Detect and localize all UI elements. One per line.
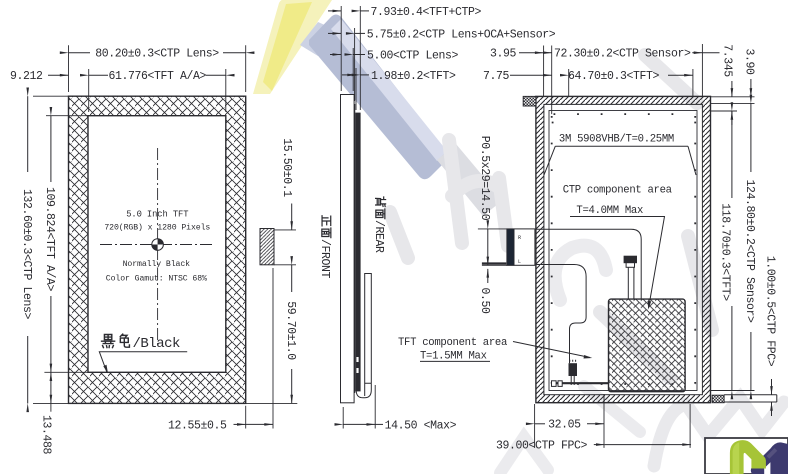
svg-text:Color Gamut: NTSC 68%: Color Gamut: NTSC 68% (106, 274, 207, 284)
svg-text:59.70±1.0: 59.70±1.0 (284, 301, 297, 360)
svg-text:Normally Black: Normally Black (123, 259, 191, 269)
svg-text:64.70±0.3<TFT>: 64.70±0.3<TFT> (568, 70, 660, 83)
svg-text:124.80±0.2<CTP Sensor>: 124.80±0.2<CTP Sensor> (743, 179, 756, 323)
svg-text:80.20±0.3<CTP Lens>: 80.20±0.3<CTP Lens> (95, 48, 219, 61)
svg-text:5.00<CTP Lens>: 5.00<CTP Lens> (367, 49, 459, 62)
svg-text:L: L (518, 259, 521, 265)
svg-text:3M 5908VHB/T=0.25MM: 3M 5908VHB/T=0.25MM (559, 133, 674, 145)
svg-text:15.50±0.1: 15.50±0.1 (280, 138, 293, 197)
svg-text:720(RGB) x 1280 Pixels: 720(RGB) x 1280 Pixels (104, 223, 210, 233)
svg-text:T=4.0MM Max: T=4.0MM Max (576, 205, 643, 217)
svg-text:14.50 <Max>: 14.50 <Max> (385, 419, 457, 432)
svg-text:P0.5x29=14.50: P0.5x29=14.50 (478, 136, 491, 221)
svg-text:32.05: 32.05 (548, 419, 581, 432)
svg-text:9.212: 9.212 (10, 70, 43, 83)
svg-text:61.776<TFT A/A>: 61.776<TFT A/A> (109, 70, 207, 83)
svg-text:7.345: 7.345 (721, 44, 734, 77)
svg-text:3.95: 3.95 (490, 48, 517, 61)
svg-text:13.488: 13.488 (40, 415, 53, 455)
svg-text:118.70±0.3<TFT>: 118.70±0.3<TFT> (718, 203, 731, 301)
svg-text:/Black: /Black (133, 336, 181, 352)
svg-text:132.60±0.3<CTP Lens>: 132.60±0.3<CTP Lens> (20, 189, 33, 320)
svg-text:5.0 Inch TFT: 5.0 Inch TFT (126, 209, 188, 219)
svg-text:CTP component area: CTP component area (563, 185, 672, 197)
svg-text:R: R (518, 235, 521, 241)
svg-text:1.98±0.2<TFT>: 1.98±0.2<TFT> (371, 70, 456, 83)
svg-text:7.93±0.4<TFT+CTP>: 7.93±0.4<TFT+CTP> (371, 6, 482, 19)
svg-text:109.824<TFT A/A>: 109.824<TFT A/A> (43, 187, 56, 292)
svg-text:1.00±0.5<CTP FPC>: 1.00±0.5<CTP FPC> (764, 256, 777, 367)
svg-text:0.50: 0.50 (478, 287, 491, 314)
svg-text:7.75: 7.75 (483, 70, 510, 83)
svg-text:72.30±0.2<CTP Sensor>: 72.30±0.2<CTP Sensor> (554, 48, 691, 61)
svg-text:39.00<CTP FPC>: 39.00<CTP FPC> (496, 440, 588, 453)
svg-text:3.90: 3.90 (742, 48, 755, 75)
svg-text:TFT component area: TFT component area (398, 337, 507, 349)
svg-text:/FRONT: /FRONT (318, 239, 331, 279)
svg-text:/REAR: /REAR (372, 220, 385, 253)
svg-text:5.75±0.2<CTP Lens+OCA+Sensor>: 5.75±0.2<CTP Lens+OCA+Sensor> (367, 28, 556, 41)
svg-text:12.55±0.5: 12.55±0.5 (168, 419, 227, 432)
